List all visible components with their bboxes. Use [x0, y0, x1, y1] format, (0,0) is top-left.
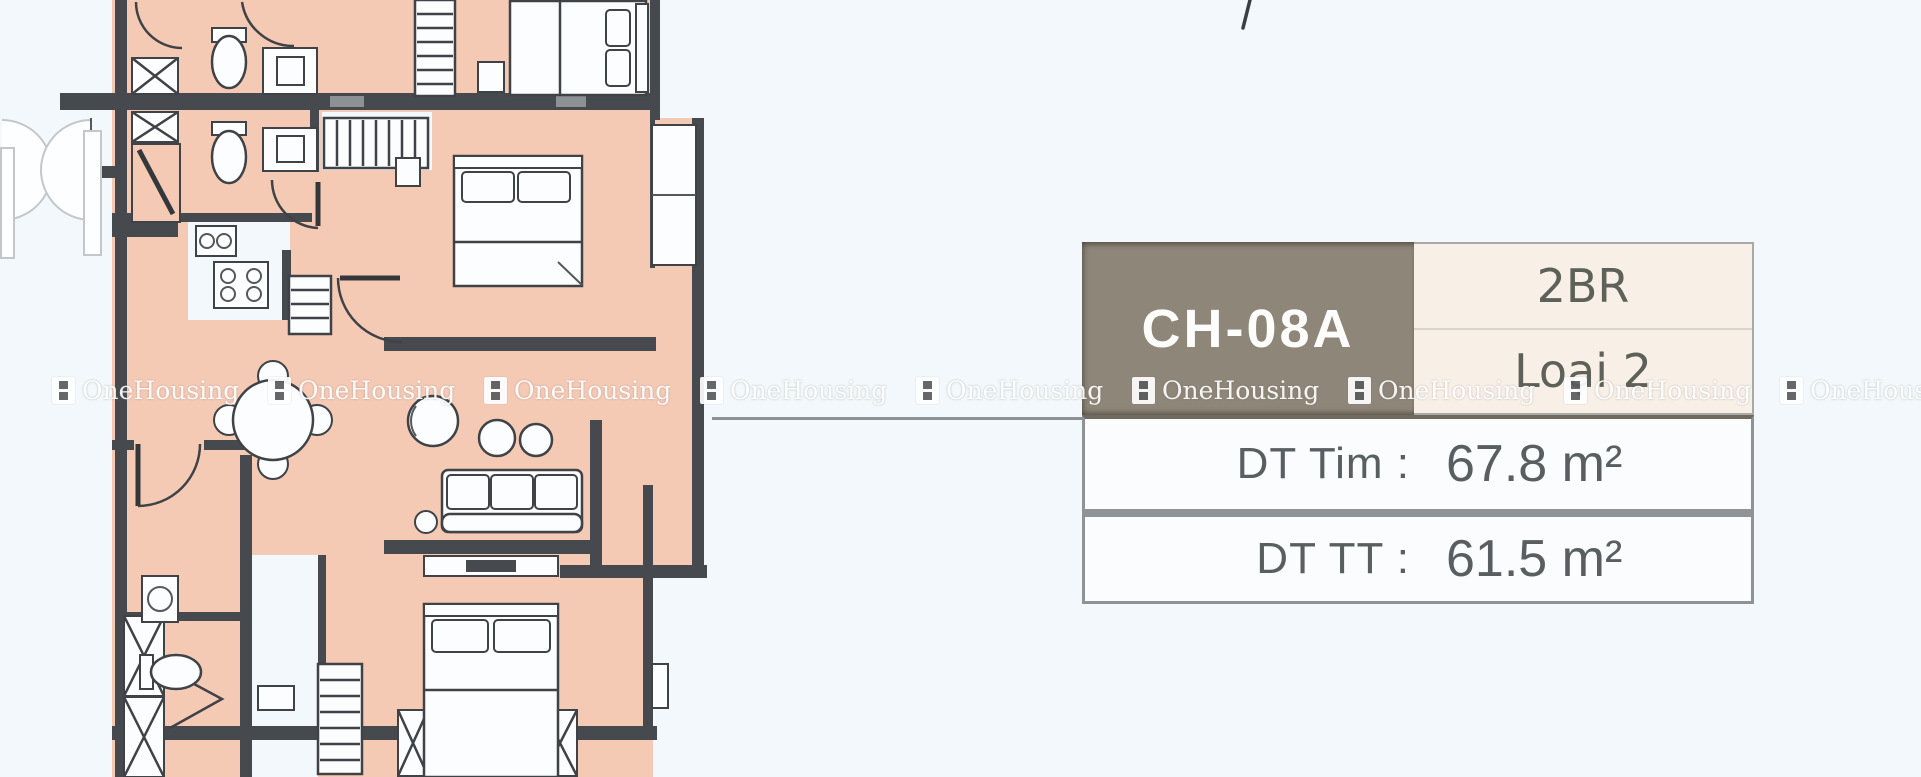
- stray-line: [1236, 0, 1258, 32]
- area-value-tim: 67.8 m²: [1446, 434, 1716, 494]
- onehousing-logo-icon: [1780, 377, 1803, 404]
- area-label-tt: DT TT :: [1120, 534, 1410, 584]
- onehousing-logo-icon: [916, 377, 939, 404]
- unit-info-card[interactable]: CH-08A 2BR Loại 2 DT Tim : 67.8 m² DT TT…: [1082, 242, 1754, 604]
- area-row-tt: DT TT : 61.5 m²: [1082, 512, 1754, 604]
- watermark-text: OneHousing: [946, 376, 1103, 405]
- area-row-tim: DT Tim : 67.8 m²: [1082, 415, 1754, 512]
- area-label-tim: DT Tim :: [1120, 439, 1410, 489]
- watermark: OneHousing: [916, 376, 1103, 405]
- watermark: OneHousing: [1780, 376, 1921, 405]
- unit-code: CH-08A: [1141, 302, 1354, 356]
- unit-type-cell: 2BR Loại 2: [1414, 242, 1754, 415]
- unit-code-cell: CH-08A: [1082, 242, 1414, 415]
- watermark-text: OneHousing: [1810, 376, 1921, 405]
- card-header: CH-08A 2BR Loại 2: [1082, 242, 1754, 415]
- leader-line: [712, 417, 1082, 420]
- floorplan-viewer: CH-08A 2BR Loại 2 DT Tim : 67.8 m² DT TT…: [0, 0, 1921, 777]
- bedroom-type: 2BR: [1414, 244, 1752, 328]
- layout-type: Loại 2: [1414, 328, 1752, 414]
- floor-plan: [0, 0, 760, 777]
- area-value-tt: 61.5 m²: [1446, 529, 1716, 589]
